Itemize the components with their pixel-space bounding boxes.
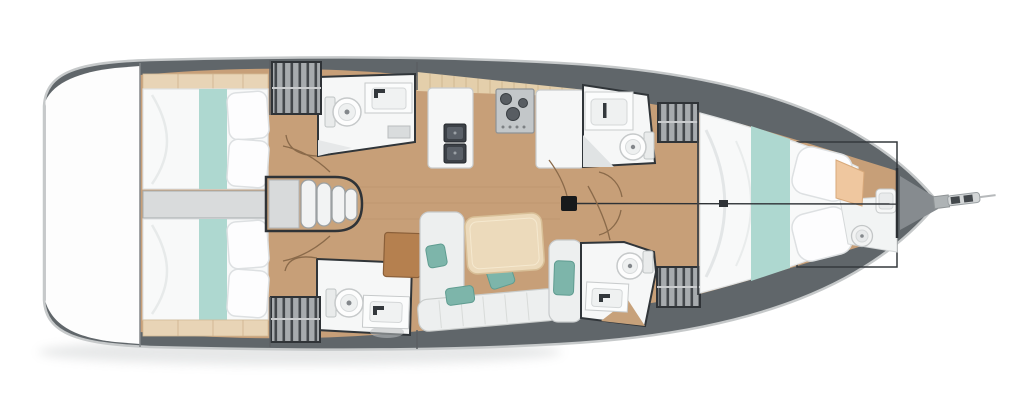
wardrobe-aft-starboard <box>271 297 320 342</box>
toilet-drain <box>345 110 350 115</box>
fwd-head-starboard: Forward head (starboard) <box>581 242 656 326</box>
double-sink: Double galley sink <box>444 124 466 163</box>
faucet <box>599 294 603 302</box>
bed-runner <box>199 219 227 320</box>
chart-table: Chart table <box>383 232 422 277</box>
toilet-drain <box>860 234 864 238</box>
sink-basin <box>879 193 893 209</box>
companionway: Companionway steps <box>266 177 362 231</box>
step <box>345 189 357 220</box>
wardrobe-aft-port <box>272 62 321 114</box>
stove: Three-burner stove <box>496 89 534 133</box>
cushion <box>425 243 448 268</box>
faucet <box>373 306 377 315</box>
aft-cabin-starboard: Aft double cabin (starboard) <box>143 219 270 336</box>
cushion <box>445 285 475 306</box>
step <box>301 180 316 228</box>
toilet-tank <box>643 251 653 273</box>
shelf <box>143 74 268 89</box>
sprit-base <box>933 195 949 209</box>
pillow <box>226 220 269 270</box>
shower-grate <box>388 126 410 138</box>
anchor-line <box>980 195 996 197</box>
mast: Mast <box>561 196 577 211</box>
shelf <box>143 320 268 336</box>
pillow <box>226 139 269 189</box>
forestay-fitting <box>719 200 728 207</box>
aft-cabin-port: Aft double cabin (port) <box>143 74 270 189</box>
wardrobe-fwd-starboard <box>657 267 700 307</box>
swim-platform: Swim platform / transom <box>46 66 141 344</box>
anchor-segment <box>950 196 960 204</box>
salon-table: Salon table <box>464 212 545 274</box>
faucet <box>374 89 378 98</box>
fwd-head-port: Forward head (port) <box>583 85 655 167</box>
toilet-drain <box>631 145 635 149</box>
pillow <box>226 91 269 141</box>
faucet <box>603 103 607 118</box>
bed-runner <box>199 89 227 189</box>
cushion <box>553 261 574 296</box>
forestay-line <box>577 204 897 205</box>
anchor-segment <box>963 195 973 203</box>
wardrobe-fwd-port <box>658 103 698 142</box>
counter-right <box>536 90 584 168</box>
toilet-drain <box>347 301 352 306</box>
step <box>332 186 345 223</box>
landing <box>269 180 299 228</box>
engine-compartment: Engine compartment <box>143 191 268 218</box>
toilet-drain <box>628 264 632 268</box>
bow-sprit <box>933 189 996 208</box>
pillow <box>226 269 269 319</box>
sink-basin <box>591 99 627 125</box>
deck-plan: Sailing yacht interior deck plan Swim pl… <box>0 0 1024 411</box>
aft-head-port: Aft head with shower (port) <box>318 74 415 156</box>
step <box>317 183 331 226</box>
